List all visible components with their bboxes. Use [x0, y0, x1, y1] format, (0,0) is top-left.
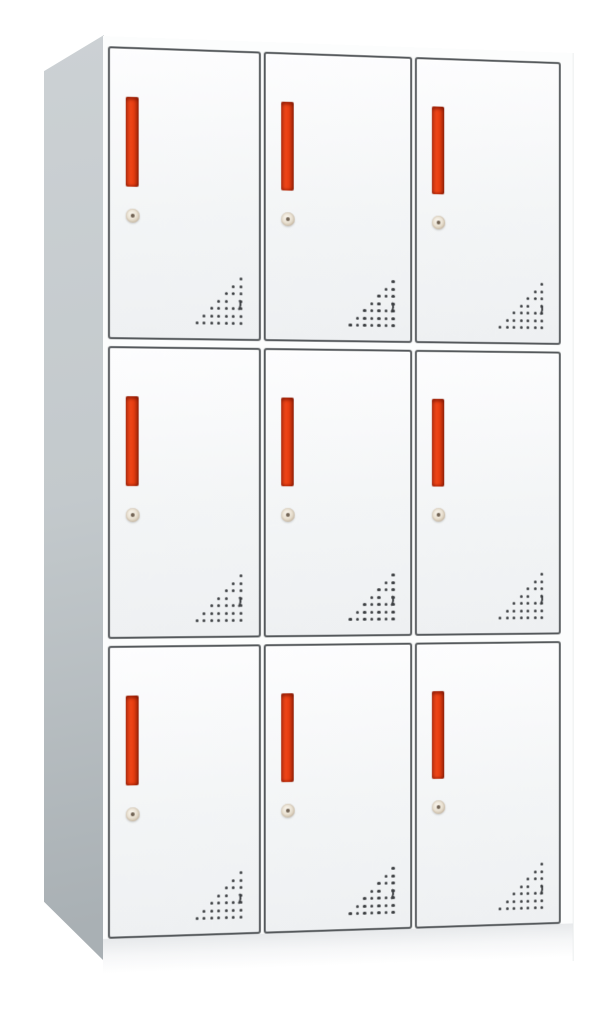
vent-dot	[239, 589, 242, 592]
vent-dot	[232, 619, 235, 622]
keyhole-icon	[432, 800, 445, 814]
vent-dot	[239, 604, 242, 607]
vent-dot	[506, 609, 509, 612]
vent-dot	[203, 917, 206, 920]
vent-dot	[239, 277, 242, 280]
vent-dot	[540, 587, 543, 590]
vent-dot	[533, 602, 536, 605]
vent-dot	[392, 324, 395, 327]
vent-dot	[225, 314, 228, 317]
vent-dot	[217, 894, 220, 897]
vent-dot	[540, 326, 543, 329]
locker-door	[108, 46, 261, 341]
vent-dot	[384, 588, 387, 591]
vent-dot	[377, 302, 380, 305]
vent-dot	[533, 580, 536, 583]
vent-dot	[533, 616, 536, 619]
vent-dot	[392, 309, 395, 312]
vent-dot	[513, 319, 516, 322]
vent-dot	[349, 618, 352, 621]
vent-dot	[520, 602, 523, 605]
vent-dot	[217, 619, 220, 622]
vent-dot	[356, 912, 359, 915]
vent-dot	[520, 892, 523, 895]
vent-dot	[377, 911, 380, 914]
vent-dot	[370, 596, 373, 599]
vent-dot	[384, 287, 387, 290]
vent-dot	[210, 307, 213, 310]
vent-dot	[377, 596, 380, 599]
vent-dot	[239, 582, 242, 585]
door-handle-icon	[126, 97, 139, 187]
vent-dot	[533, 297, 536, 300]
vent-dot	[392, 603, 395, 606]
vent-dot	[377, 882, 380, 885]
vent-dot	[506, 319, 509, 322]
vent-dot	[520, 609, 523, 612]
vent-dot	[210, 322, 213, 325]
vent-dot	[392, 573, 395, 576]
vent-dot	[210, 917, 213, 920]
vent-dot	[363, 309, 366, 312]
door-handle-icon	[126, 396, 139, 486]
vent-dot	[225, 589, 228, 592]
vent-dot	[225, 307, 228, 310]
vent-dot	[210, 612, 213, 615]
keyhole-icon	[281, 804, 295, 818]
vent-dot	[232, 582, 235, 585]
vent-dot	[526, 297, 529, 300]
vent-dot	[370, 610, 373, 613]
vent-dot	[203, 321, 206, 324]
vent-dot	[533, 877, 536, 880]
vent-dot	[513, 907, 516, 910]
vent-holes	[499, 282, 548, 333]
vent-dot	[225, 901, 228, 904]
vent-dot	[203, 612, 206, 615]
vent-dot	[217, 909, 220, 912]
vent-dot	[210, 604, 213, 607]
vent-dot	[225, 886, 228, 889]
locker-door	[108, 346, 261, 639]
keyhole-icon	[126, 209, 140, 223]
door-handle-icon	[281, 693, 294, 782]
vent-dot	[526, 877, 529, 880]
vent-dot	[520, 311, 523, 314]
vent-dot	[526, 304, 529, 307]
vent-dot	[526, 319, 529, 322]
vent-dot	[506, 907, 509, 910]
vent-dot	[392, 610, 395, 613]
vent-dot	[356, 610, 359, 613]
vent-dot	[377, 309, 380, 312]
vent-dot	[392, 295, 395, 298]
vent-dot	[203, 909, 206, 912]
vent-dot	[217, 901, 220, 904]
vent-dot	[540, 899, 543, 902]
vent-dot	[533, 319, 536, 322]
vent-dot	[232, 285, 235, 288]
vent-dot	[225, 619, 228, 622]
product-image	[0, 0, 605, 1009]
vent-dot	[384, 581, 387, 584]
vent-holes	[349, 573, 399, 624]
vent-dot	[384, 295, 387, 298]
vent-dot	[377, 610, 380, 613]
vent-dot	[520, 319, 523, 322]
vent-dot	[384, 324, 387, 327]
vent-dot	[526, 885, 529, 888]
locker-door	[415, 57, 561, 345]
vent-dot	[363, 316, 366, 319]
vent-dot	[217, 322, 220, 325]
vent-holes	[349, 867, 399, 919]
vent-dot	[540, 594, 543, 597]
vent-dot	[370, 911, 373, 914]
vent-dot	[363, 904, 366, 907]
vent-dot	[225, 597, 228, 600]
vent-dot	[526, 892, 529, 895]
vent-dot	[540, 580, 543, 583]
door-handle-icon	[281, 398, 294, 487]
vent-dot	[239, 908, 242, 911]
vent-dot	[506, 616, 509, 619]
vent-dot	[363, 610, 366, 613]
vent-dot	[506, 326, 509, 329]
vent-dot	[370, 302, 373, 305]
vent-dot	[520, 326, 523, 329]
vent-dot	[239, 300, 242, 303]
vent-dot	[232, 322, 235, 325]
vent-dot	[232, 589, 235, 592]
keyhole-icon	[126, 807, 140, 821]
door-handle-icon	[432, 106, 444, 194]
vent-dot	[363, 618, 366, 621]
keyhole-icon	[126, 508, 140, 522]
vent-dot	[225, 611, 228, 614]
vent-dot	[232, 314, 235, 317]
vent-dot	[232, 886, 235, 889]
vent-dot	[203, 314, 206, 317]
keyhole-icon	[281, 212, 295, 226]
vent-dot	[370, 897, 373, 900]
vent-dot	[540, 305, 543, 308]
locker-door	[263, 348, 412, 637]
vent-dot	[370, 889, 373, 892]
locker-door	[263, 52, 412, 343]
vent-dot	[370, 904, 373, 907]
vent-dot	[384, 904, 387, 907]
vent-dot	[520, 304, 523, 307]
vent-dot	[239, 893, 242, 896]
cabinet-front	[103, 36, 574, 978]
vent-dot	[526, 906, 529, 909]
vent-dot	[392, 302, 395, 305]
vent-dot	[195, 321, 198, 324]
vent-dot	[540, 906, 543, 909]
vent-dot	[526, 609, 529, 612]
door-handle-icon	[126, 695, 139, 785]
vent-dot	[513, 602, 516, 605]
vent-dot	[499, 617, 502, 620]
vent-dot	[217, 612, 220, 615]
vent-dot	[526, 595, 529, 598]
vent-holes	[349, 279, 399, 331]
vent-dot	[217, 604, 220, 607]
vent-dot	[239, 597, 242, 600]
vent-dot	[392, 617, 395, 620]
vent-dot	[533, 906, 536, 909]
locker-door	[108, 644, 261, 939]
vent-dot	[526, 587, 529, 590]
vent-dot	[239, 901, 242, 904]
vent-dot	[392, 867, 395, 870]
vent-dot	[363, 324, 366, 327]
vent-dot	[392, 287, 395, 290]
vent-dot	[540, 877, 543, 880]
locker-door	[263, 643, 412, 934]
vent-dot	[356, 316, 359, 319]
vent-dot	[349, 324, 352, 327]
vent-dot	[217, 307, 220, 310]
vent-dot	[533, 892, 536, 895]
vent-dot	[533, 899, 536, 902]
locker-door	[415, 350, 561, 636]
keyhole-icon	[432, 508, 445, 522]
vent-dot	[370, 603, 373, 606]
vent-holes	[195, 574, 247, 626]
vent-dot	[526, 616, 529, 619]
vent-dot	[377, 324, 380, 327]
vent-dot	[533, 290, 536, 293]
vent-dot	[356, 905, 359, 908]
vent-dot	[363, 603, 366, 606]
vent-dot	[520, 899, 523, 902]
door-grid	[108, 46, 561, 939]
vent-dot	[225, 322, 228, 325]
vent-dot	[232, 916, 235, 919]
vent-dot	[195, 619, 198, 622]
vent-dot	[225, 292, 228, 295]
vent-dot	[232, 611, 235, 614]
vent-dot	[520, 907, 523, 910]
vent-dot	[526, 899, 529, 902]
vent-dot	[513, 892, 516, 895]
vent-dot	[239, 315, 242, 318]
vent-dot	[540, 290, 543, 293]
vent-dot	[239, 886, 242, 889]
vent-dot	[217, 597, 220, 600]
vent-dot	[349, 912, 352, 915]
vent-dot	[384, 317, 387, 320]
vent-dot	[370, 316, 373, 319]
vent-dot	[225, 299, 228, 302]
door-handle-icon	[432, 399, 444, 487]
vent-dot	[533, 312, 536, 315]
vent-dot	[533, 326, 536, 329]
vent-dot	[239, 619, 242, 622]
vent-dot	[225, 894, 228, 897]
vent-dot	[499, 907, 502, 910]
vent-holes	[499, 862, 548, 914]
vent-dot	[540, 870, 543, 873]
vent-dot	[392, 903, 395, 906]
vent-dot	[540, 297, 543, 300]
vent-dot	[526, 326, 529, 329]
cabinet-side-panel	[44, 35, 104, 961]
vent-dot	[239, 322, 242, 325]
vent-dot	[506, 900, 509, 903]
vent-dot	[203, 619, 206, 622]
vent-dot	[520, 885, 523, 888]
vent-dot	[540, 573, 543, 576]
vent-dot	[217, 299, 220, 302]
vent-dot	[392, 874, 395, 877]
vent-dot	[540, 283, 543, 286]
door-handle-icon	[281, 102, 294, 191]
vent-dot	[239, 871, 242, 874]
vent-dot	[384, 911, 387, 914]
vent-dot	[210, 314, 213, 317]
vent-dot	[392, 896, 395, 899]
vent-dot	[239, 574, 242, 577]
vent-dot	[239, 307, 242, 310]
vent-dot	[239, 916, 242, 919]
vent-dot	[225, 916, 228, 919]
vent-dot	[513, 609, 516, 612]
vent-dot	[392, 280, 395, 283]
vent-dot	[356, 618, 359, 621]
vent-dot	[239, 285, 242, 288]
vent-dot	[526, 312, 529, 315]
vent-dot	[195, 917, 198, 920]
vent-dot	[363, 912, 366, 915]
vent-dot	[513, 616, 516, 619]
vent-dot	[377, 897, 380, 900]
keyhole-icon	[281, 508, 295, 522]
vent-dot	[232, 908, 235, 911]
vent-dot	[540, 312, 543, 315]
vent-dot	[540, 892, 543, 895]
vent-dot	[392, 588, 395, 591]
vent-dot	[370, 618, 373, 621]
vent-dot	[217, 916, 220, 919]
vent-dot	[513, 900, 516, 903]
vent-dot	[392, 595, 395, 598]
vent-dot	[225, 604, 228, 607]
vent-dot	[392, 911, 395, 914]
vent-dot	[377, 295, 380, 298]
keyhole-icon	[432, 216, 445, 230]
vent-dot	[533, 609, 536, 612]
vent-dot	[225, 909, 228, 912]
vent-dot	[377, 317, 380, 320]
vent-dot	[540, 863, 543, 866]
vent-dot	[533, 870, 536, 873]
vent-dot	[520, 595, 523, 598]
vent-dot	[377, 603, 380, 606]
vent-dot	[370, 309, 373, 312]
vent-dot	[232, 879, 235, 882]
vent-dot	[239, 611, 242, 614]
vent-dot	[370, 324, 373, 327]
vent-dot	[540, 884, 543, 887]
vent-holes	[499, 573, 548, 624]
vent-dot	[210, 619, 213, 622]
vent-dot	[377, 588, 380, 591]
vent-dot	[377, 904, 380, 907]
vent-dot	[513, 311, 516, 314]
vent-dot	[356, 324, 359, 327]
vent-dot	[384, 618, 387, 621]
vent-dot	[540, 319, 543, 322]
locker-door	[415, 641, 561, 929]
vent-dot	[377, 618, 380, 621]
vent-dot	[363, 897, 366, 900]
vent-dot	[384, 874, 387, 877]
vent-dot	[239, 292, 242, 295]
vent-dot	[499, 326, 502, 329]
vent-dot	[540, 602, 543, 605]
vent-dot	[540, 609, 543, 612]
vent-holes	[195, 871, 247, 924]
vent-dot	[392, 889, 395, 892]
vent-dot	[392, 581, 395, 584]
vent-dot	[210, 909, 213, 912]
vent-dot	[533, 587, 536, 590]
vent-dot	[540, 616, 543, 619]
vent-dot	[526, 602, 529, 605]
vent-dot	[384, 610, 387, 613]
vent-dot	[392, 881, 395, 884]
vent-holes	[195, 277, 247, 329]
vent-dot	[239, 878, 242, 881]
vent-dot	[520, 616, 523, 619]
vent-dot	[392, 317, 395, 320]
vent-dot	[513, 326, 516, 329]
door-handle-icon	[432, 691, 444, 779]
vent-dot	[232, 292, 235, 295]
vent-dot	[377, 889, 380, 892]
vent-dot	[384, 882, 387, 885]
vent-dot	[210, 902, 213, 905]
vent-dot	[217, 314, 220, 317]
